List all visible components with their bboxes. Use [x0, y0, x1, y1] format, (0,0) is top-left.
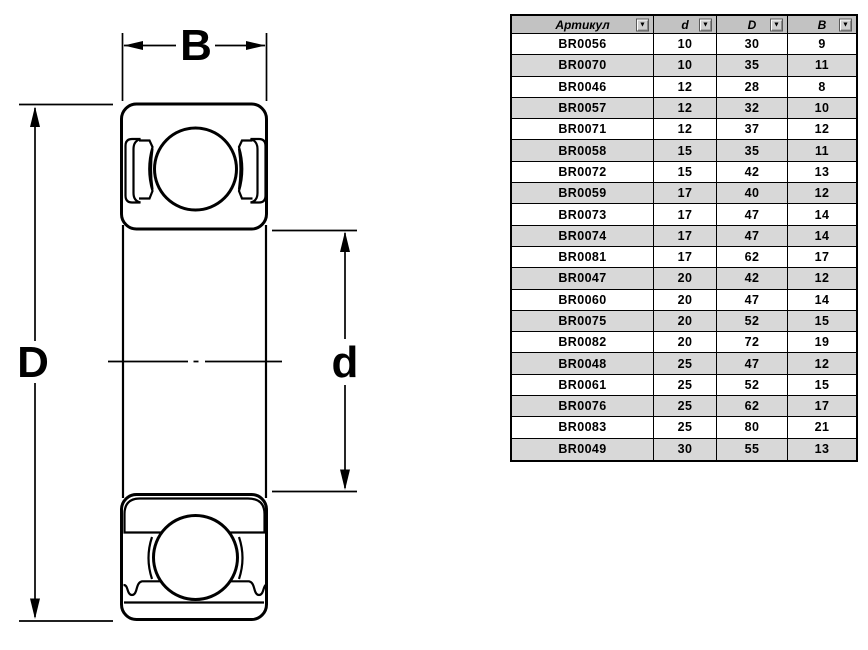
table-row: BR0049305513	[512, 439, 856, 460]
cell-article: BR0081	[512, 247, 654, 267]
cell-article: BR0070	[512, 55, 654, 75]
dimension-b: B	[123, 21, 267, 101]
cell-article: BR0048	[512, 353, 654, 373]
table-row: BR0082207219	[512, 332, 856, 353]
cell-B: 12	[788, 183, 856, 203]
cell-article: BR0057	[512, 98, 654, 118]
cell-D: 47	[717, 226, 788, 246]
d-inner-arrowhead-top	[340, 232, 350, 253]
page: B D d	[0, 0, 868, 650]
table-row: BR005610309	[512, 34, 856, 55]
cell-d: 20	[654, 332, 717, 352]
cell-d: 17	[654, 183, 717, 203]
table-row: BR0057123210	[512, 98, 856, 119]
cell-B: 15	[788, 375, 856, 395]
cell-d: 25	[654, 375, 717, 395]
cell-D: 47	[717, 204, 788, 224]
cell-D: 47	[717, 353, 788, 373]
dimension-inner-d: d	[272, 231, 358, 492]
table-row: BR0073174714	[512, 204, 856, 225]
cell-D: 72	[717, 332, 788, 352]
cell-B: 10	[788, 98, 856, 118]
cell-B: 12	[788, 119, 856, 139]
table-row: BR0075205215	[512, 311, 856, 332]
dimension-outer-d: D	[17, 105, 113, 622]
cell-d: 15	[654, 140, 717, 160]
bearing-bottom-section	[122, 495, 267, 620]
dropdown-arrow-icon: ▼	[773, 21, 780, 28]
cell-d: 25	[654, 353, 717, 373]
column-header-d: d ▼	[654, 16, 717, 33]
cell-d: 25	[654, 396, 717, 416]
column-header-d-label: d	[681, 18, 688, 32]
cell-B: 11	[788, 140, 856, 160]
table-body: BR005610309BR0070103511BR004612288BR0057…	[512, 34, 856, 460]
bearing-table: Артикул ▼ d ▼ D ▼ B ▼ BR005610309BR00701…	[510, 14, 858, 462]
ball-bottom	[154, 516, 238, 600]
cell-D: 35	[717, 55, 788, 75]
cell-D: 42	[717, 268, 788, 288]
cell-B: 14	[788, 204, 856, 224]
cell-D: 42	[717, 162, 788, 182]
cell-d: 10	[654, 34, 717, 54]
cell-B: 14	[788, 290, 856, 310]
cell-article: BR0056	[512, 34, 654, 54]
cell-B: 14	[788, 226, 856, 246]
cell-D: 37	[717, 119, 788, 139]
cell-article: BR0059	[512, 183, 654, 203]
table-row: BR0048254712	[512, 353, 856, 374]
column-header-D: D ▼	[717, 16, 788, 33]
bearing-top-section	[122, 104, 267, 229]
table-row: BR0061255215	[512, 375, 856, 396]
filter-dropdown-button-B[interactable]: ▼	[839, 18, 852, 31]
column-header-article-label: Артикул	[555, 18, 609, 32]
b-arrowhead-left	[124, 41, 144, 50]
filter-dropdown-button-article[interactable]: ▼	[636, 18, 649, 31]
cell-D: 40	[717, 183, 788, 203]
filter-dropdown-button-d[interactable]: ▼	[699, 18, 712, 31]
cell-B: 15	[788, 311, 856, 331]
filter-dropdown-button-D[interactable]: ▼	[770, 18, 783, 31]
table-row: BR0081176217	[512, 247, 856, 268]
d-outer-arrowhead-top	[30, 107, 40, 128]
dropdown-arrow-icon: ▼	[702, 21, 709, 28]
cell-B: 13	[788, 162, 856, 182]
cell-article: BR0076	[512, 396, 654, 416]
cell-article: BR0075	[512, 311, 654, 331]
cell-d: 30	[654, 439, 717, 460]
dropdown-arrow-icon: ▼	[842, 21, 849, 28]
cell-D: 30	[717, 34, 788, 54]
cell-d: 20	[654, 311, 717, 331]
table-row: BR0071123712	[512, 119, 856, 140]
cell-B: 21	[788, 417, 856, 437]
column-header-D-label: D	[748, 18, 757, 32]
cell-article: BR0071	[512, 119, 654, 139]
column-header-B: B ▼	[788, 16, 856, 33]
cell-D: 52	[717, 311, 788, 331]
table-row: BR0076256217	[512, 396, 856, 417]
cell-B: 12	[788, 268, 856, 288]
cell-article: BR0073	[512, 204, 654, 224]
cell-D: 62	[717, 396, 788, 416]
cell-d: 25	[654, 417, 717, 437]
table-row: BR0074174714	[512, 226, 856, 247]
cell-B: 12	[788, 353, 856, 373]
cell-article: BR0058	[512, 140, 654, 160]
cell-D: 62	[717, 247, 788, 267]
cell-d: 10	[654, 55, 717, 75]
cell-B: 11	[788, 55, 856, 75]
cell-article: BR0082	[512, 332, 654, 352]
cell-article: BR0072	[512, 162, 654, 182]
table-row: BR0047204212	[512, 268, 856, 289]
cell-d: 17	[654, 204, 717, 224]
cell-B: 13	[788, 439, 856, 460]
cell-B: 8	[788, 77, 856, 97]
cell-d: 20	[654, 268, 717, 288]
cell-d: 12	[654, 77, 717, 97]
cell-article: BR0074	[512, 226, 654, 246]
table-row: BR0083258021	[512, 417, 856, 438]
cell-D: 35	[717, 140, 788, 160]
ball-top	[155, 128, 237, 210]
cell-article: BR0047	[512, 268, 654, 288]
table-row: BR0070103511	[512, 55, 856, 76]
cell-d: 12	[654, 119, 717, 139]
cell-d: 17	[654, 247, 717, 267]
cell-D: 28	[717, 77, 788, 97]
cell-d: 20	[654, 290, 717, 310]
table-header: Артикул ▼ d ▼ D ▼ B ▼	[512, 16, 856, 34]
cell-D: 47	[717, 290, 788, 310]
cell-d: 12	[654, 98, 717, 118]
table-row: BR0059174012	[512, 183, 856, 204]
bearing-drawing: B D d	[0, 0, 500, 650]
label-outer-diameter-D: D	[17, 338, 49, 387]
cell-B: 9	[788, 34, 856, 54]
table-row: BR004612288	[512, 77, 856, 98]
cell-article: BR0060	[512, 290, 654, 310]
cell-B: 17	[788, 396, 856, 416]
cell-article: BR0083	[512, 417, 654, 437]
label-inner-diameter-d: d	[332, 338, 359, 387]
cell-article: BR0049	[512, 439, 654, 460]
cell-D: 55	[717, 439, 788, 460]
cell-article: BR0046	[512, 77, 654, 97]
cell-B: 19	[788, 332, 856, 352]
cell-D: 52	[717, 375, 788, 395]
d-outer-arrowhead-bottom	[30, 599, 40, 620]
cell-D: 32	[717, 98, 788, 118]
table-row: BR0060204714	[512, 290, 856, 311]
column-header-B-label: B	[818, 18, 827, 32]
cell-B: 17	[788, 247, 856, 267]
column-header-article: Артикул ▼	[512, 16, 654, 33]
cell-d: 17	[654, 226, 717, 246]
table-row: BR0072154213	[512, 162, 856, 183]
cell-D: 80	[717, 417, 788, 437]
b-arrowhead-right	[246, 41, 266, 50]
cell-article: BR0061	[512, 375, 654, 395]
d-inner-arrowhead-bottom	[340, 470, 350, 491]
label-width-b: B	[180, 21, 212, 70]
table-row: BR0058153511	[512, 140, 856, 161]
cell-d: 15	[654, 162, 717, 182]
dropdown-arrow-icon: ▼	[639, 21, 646, 28]
